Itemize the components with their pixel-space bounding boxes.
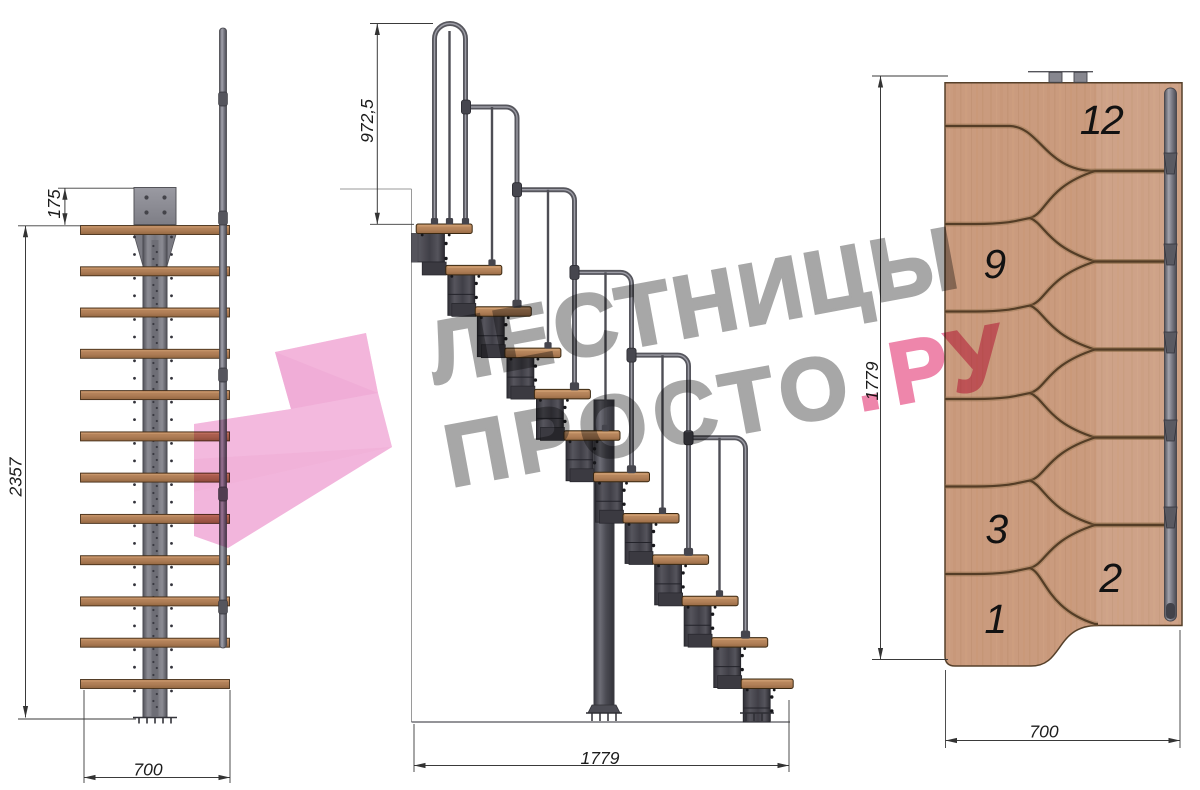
svg-text:9: 9 [983, 241, 1005, 287]
svg-text:1779: 1779 [581, 748, 620, 768]
svg-text:175: 175 [44, 189, 64, 218]
svg-text:972,5: 972,5 [357, 99, 377, 143]
svg-text:3: 3 [985, 506, 1008, 552]
svg-text:1: 1 [984, 596, 1005, 642]
svg-text:700: 700 [133, 760, 162, 780]
svg-text:2: 2 [1098, 555, 1122, 601]
svg-text:2357: 2357 [6, 456, 26, 497]
svg-text:700: 700 [1029, 722, 1058, 742]
svg-text:12: 12 [1080, 97, 1124, 143]
